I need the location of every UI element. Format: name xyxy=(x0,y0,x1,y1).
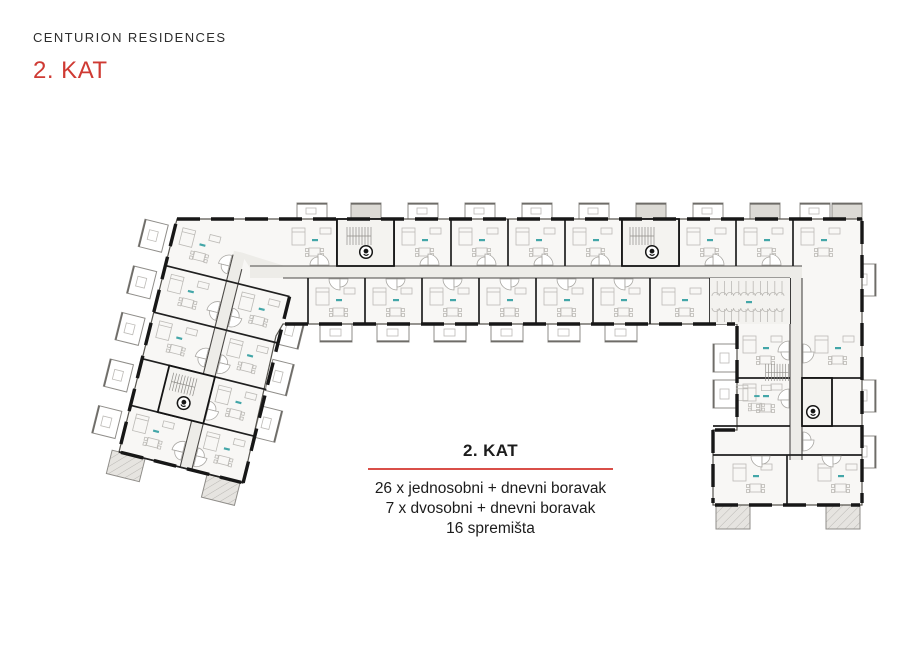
caption-line: 26 x jednosobni + dnevni boravak xyxy=(340,479,641,499)
caption-line: 16 spremišta xyxy=(340,519,641,539)
caption-line: 7 x dvosobni + dnevni boravak xyxy=(340,499,641,519)
caption-rule xyxy=(368,468,613,470)
stair-marker-icon xyxy=(807,406,820,419)
storage-units xyxy=(710,278,790,324)
stair-marker-icon xyxy=(360,246,373,259)
floor-plan-drawing xyxy=(0,0,914,662)
stair-core xyxy=(337,219,394,266)
page: CENTURION RESIDENCES 2. KAT xyxy=(0,0,914,662)
stair-marker-icon xyxy=(646,246,659,259)
plan-caption: 2. KAT 26 x jednosobni + dnevni boravak … xyxy=(340,441,641,539)
stair-core xyxy=(158,365,215,423)
caption-title: 2. KAT xyxy=(340,441,641,461)
stair-core xyxy=(622,219,679,266)
